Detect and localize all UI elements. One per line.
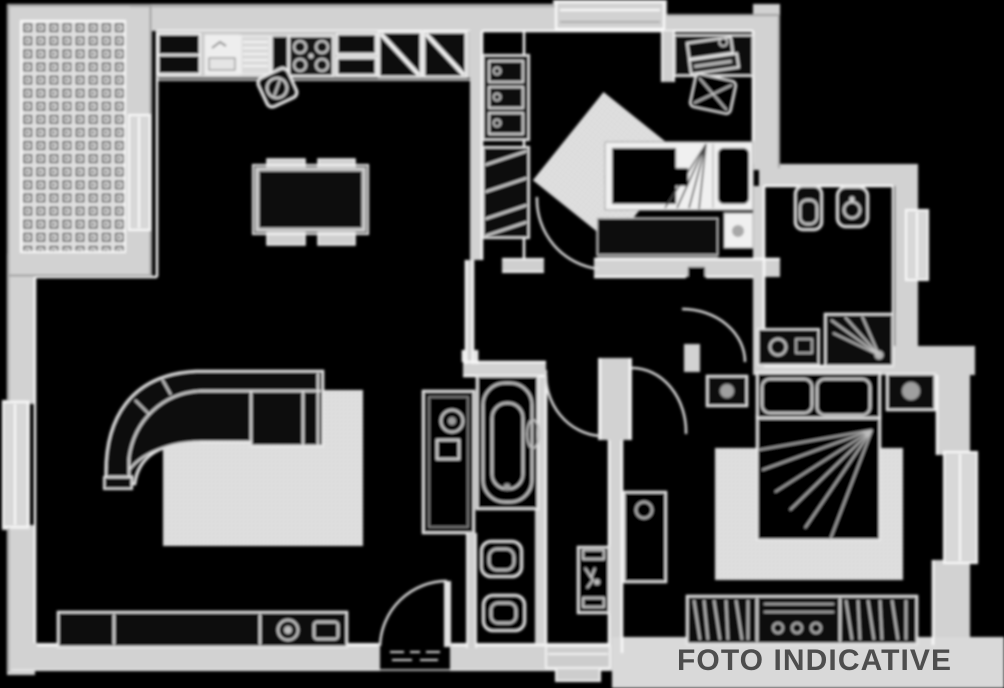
svg-text:FOTO INDICATIVE: FOTO INDICATIVE	[677, 644, 951, 677]
